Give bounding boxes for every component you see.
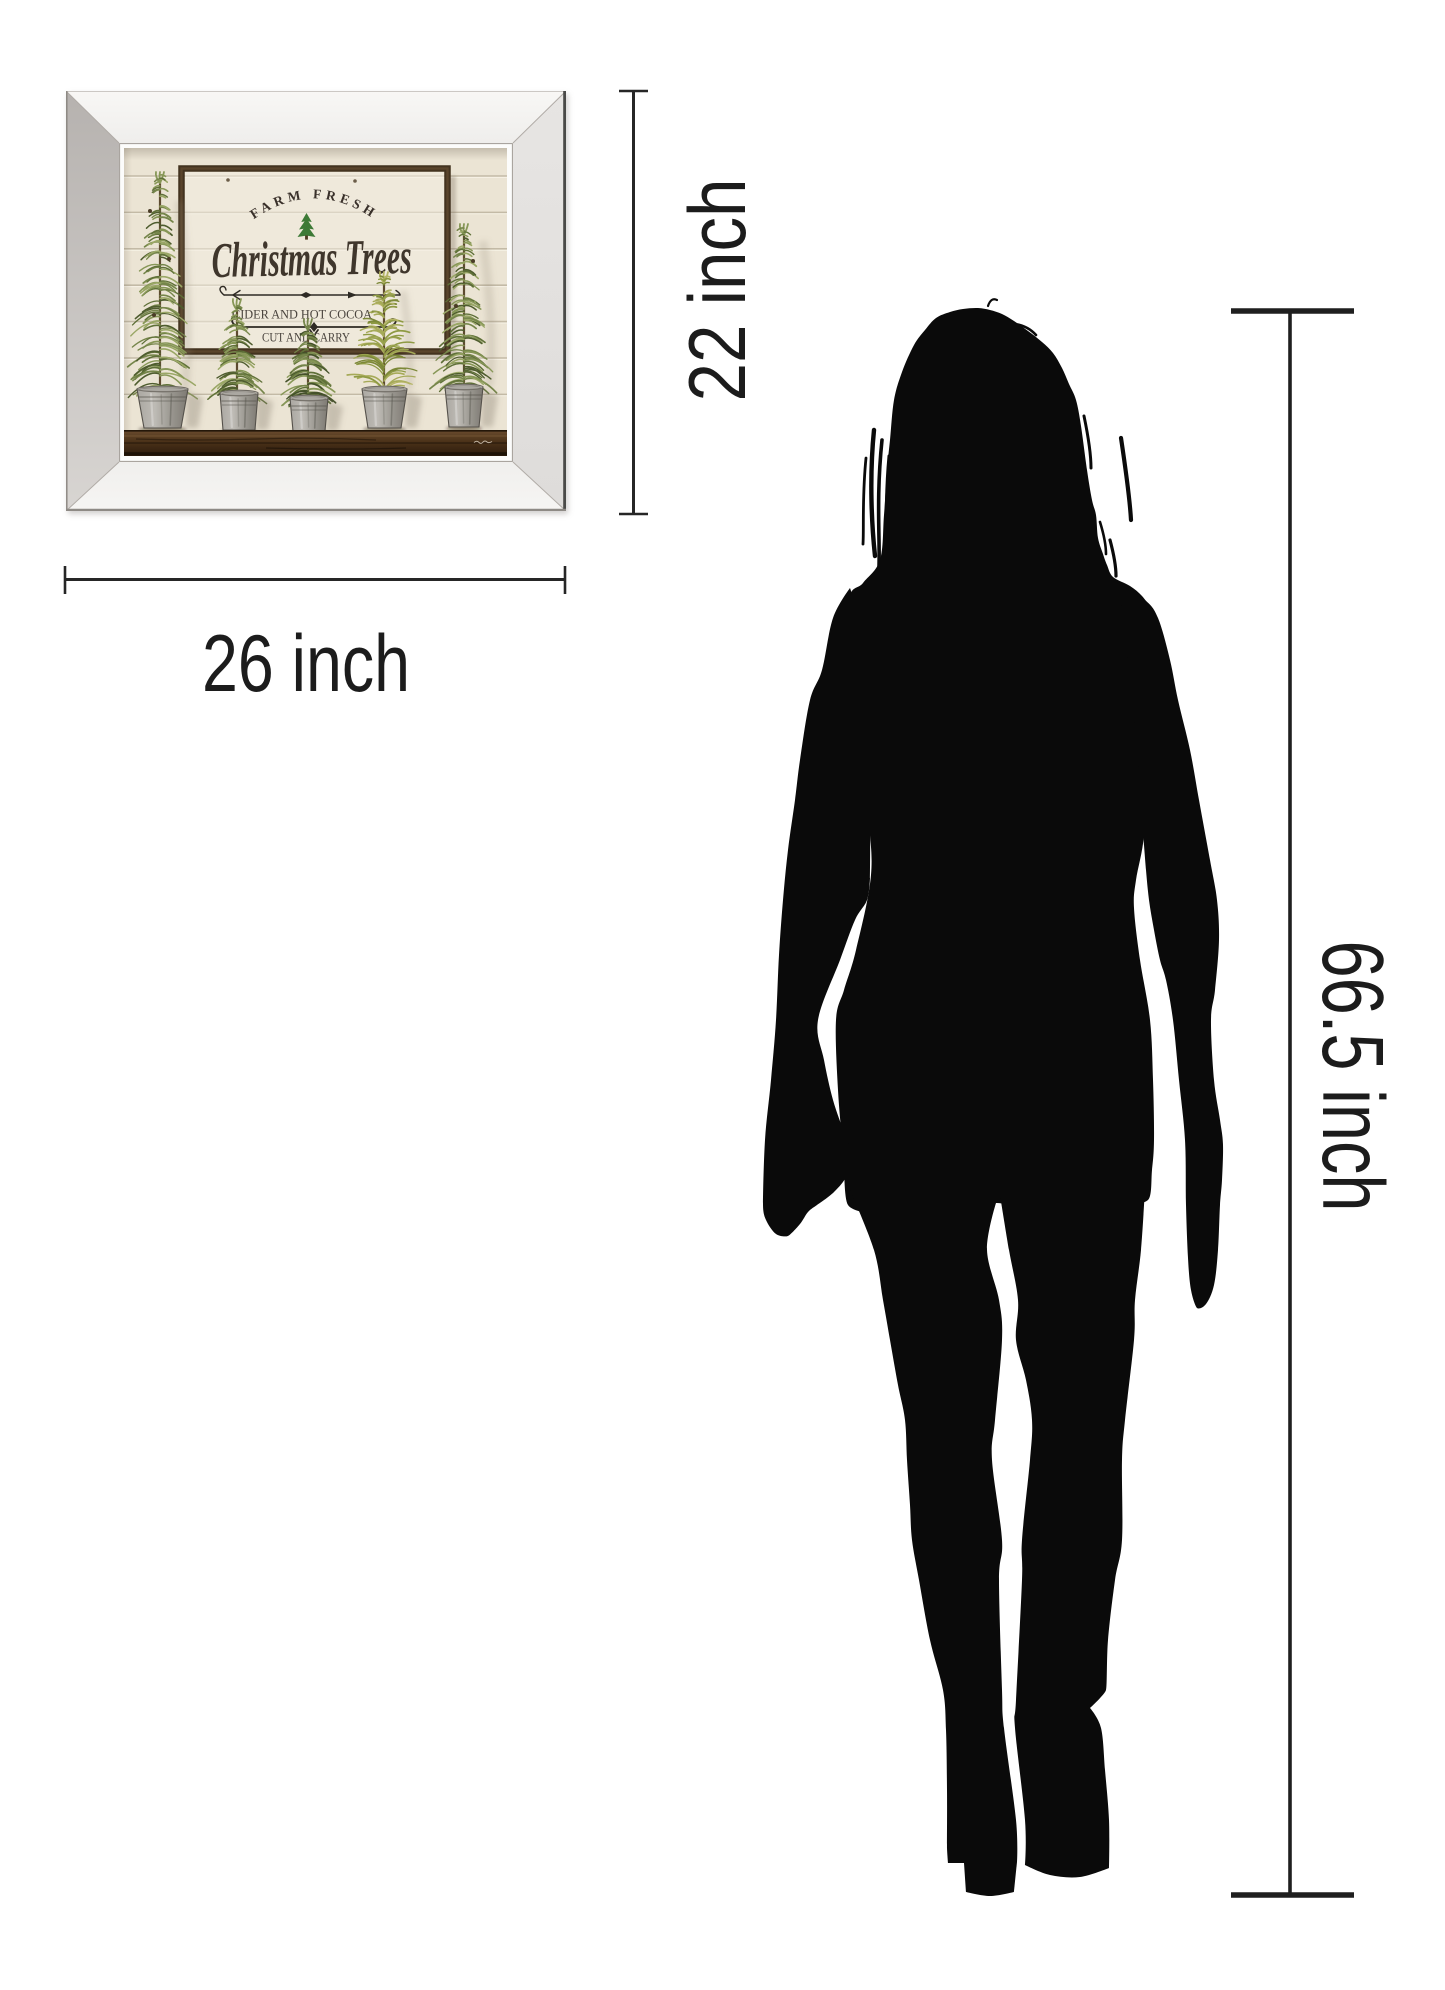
svg-text:CIDER AND HOT COCOA: CIDER AND HOT COCOA bbox=[232, 307, 373, 322]
svg-text:26 inch: 26 inch bbox=[202, 619, 410, 709]
svg-text:66.5 inch: 66.5 inch bbox=[1304, 941, 1401, 1212]
